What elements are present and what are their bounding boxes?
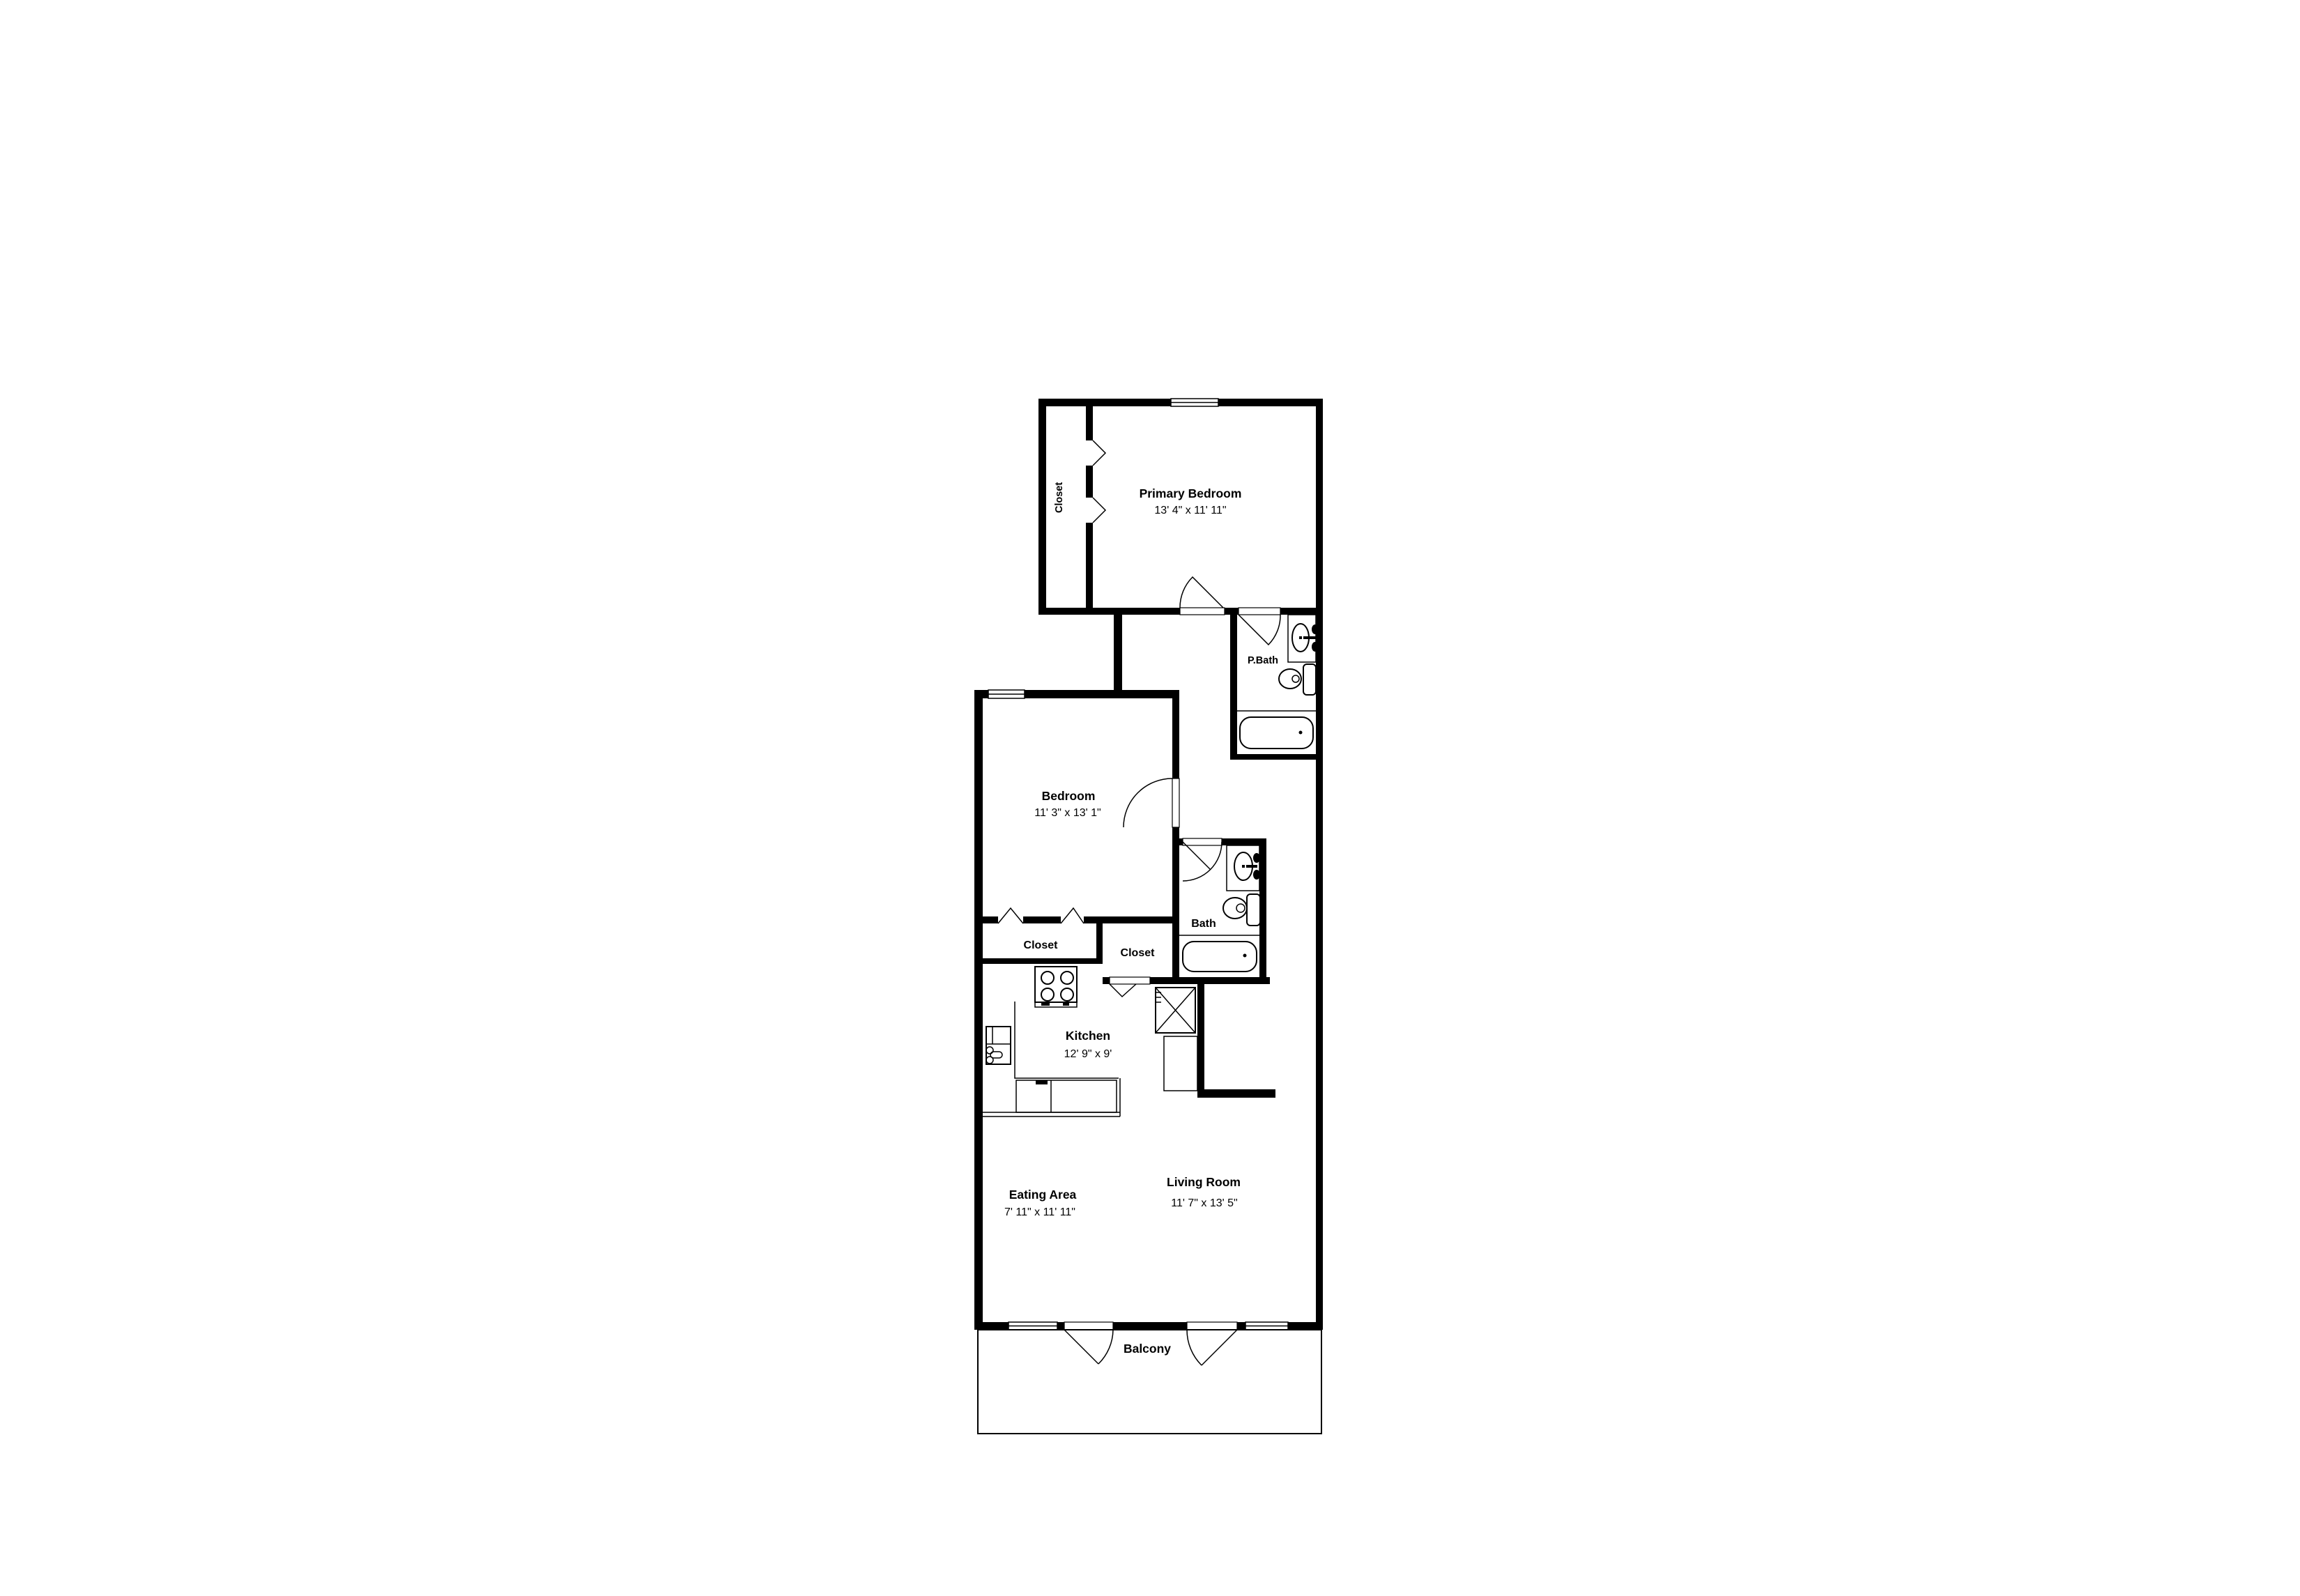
- wall-segment: [1172, 827, 1179, 984]
- wall-segment: [1023, 916, 1061, 923]
- room-label-primary-bedroom: Primary Bedroom: [1140, 486, 1242, 500]
- wall-segment: [1057, 1322, 1064, 1330]
- door-threshold: [1180, 608, 1225, 615]
- floor-plan-canvas: Primary Bedroom 13' 4" x 11' 11" Closet …: [0, 0, 2300, 1596]
- room-label-hall-closet: Closet: [1121, 947, 1156, 959]
- wall-segment: [1230, 608, 1237, 760]
- wall-segment: [1025, 690, 1178, 698]
- wall-segment: [1150, 977, 1270, 984]
- kitchen-sink-icon: [986, 1027, 1011, 1064]
- bifold-door-icon: [998, 908, 1023, 923]
- wall-segment: [1197, 1089, 1275, 1098]
- sink-icon: [1227, 845, 1260, 891]
- window-icon: [1009, 1322, 1057, 1330]
- door-swing-icon: [1124, 778, 1172, 827]
- wall-segment: [1218, 399, 1323, 406]
- toilet-icon: [1279, 664, 1316, 695]
- door-swing-icon: [1180, 577, 1223, 608]
- wall-segment: [1288, 1322, 1323, 1330]
- utility-cabinet: [1164, 1036, 1197, 1091]
- window-icon: [1245, 1322, 1288, 1330]
- bifold-door-icon: [1110, 984, 1136, 997]
- door-leaf: [1172, 778, 1179, 827]
- bathtub-icon: [1179, 935, 1259, 972]
- wall-segment: [1237, 1322, 1245, 1330]
- room-dims-eating-area: 7' 11" x 11' 11": [1004, 1206, 1075, 1218]
- window-icon: [988, 690, 1025, 698]
- door-threshold: [1239, 608, 1280, 615]
- wall-segment: [1230, 754, 1323, 760]
- door-swing-icon: [1187, 1330, 1237, 1365]
- door-swing-icon: [1064, 1330, 1113, 1364]
- toilet-icon: [1223, 894, 1260, 926]
- room-label-eating-area: Eating Area: [1009, 1188, 1077, 1202]
- door-threshold: [1110, 977, 1150, 984]
- door-swing-icon: [1239, 615, 1280, 645]
- wall-segment: [1316, 399, 1323, 1330]
- room-dims-bedroom: 11' 3" x 13' 1": [1034, 807, 1101, 819]
- wall-segment: [1086, 466, 1093, 498]
- bifold-door-icon: [1061, 908, 1084, 923]
- bifold-door-icon: [1093, 440, 1105, 466]
- wall-segment: [974, 1322, 1009, 1330]
- room-dims-kitchen: 12' 9" x 9': [1064, 1048, 1112, 1060]
- wall-segment: [1038, 608, 1180, 615]
- door-threshold: [1187, 1322, 1237, 1330]
- wall-segment: [1086, 399, 1093, 440]
- door-threshold: [1064, 1322, 1113, 1330]
- room-label-primary-closet: Closet: [1054, 482, 1065, 513]
- wall-segment: [1086, 523, 1093, 615]
- wall-segment: [1038, 399, 1046, 615]
- room-dims-living-room: 11' 7" x 13' 5": [1171, 1197, 1237, 1209]
- room-label-balcony: Balcony: [1124, 1342, 1171, 1356]
- room-label-primary-bath: P.Bath: [1248, 655, 1278, 666]
- stove-icon: [1035, 967, 1077, 1007]
- wall-segment: [1172, 690, 1179, 778]
- room-label-bath: Bath: [1191, 918, 1216, 930]
- window-icon: [1171, 399, 1218, 406]
- wall-segment: [974, 958, 1103, 964]
- wall-segment: [1113, 1322, 1187, 1330]
- room-label-bedroom: Bedroom: [1042, 789, 1096, 803]
- wall-segment: [974, 690, 983, 1330]
- door-swing-icon: [1183, 842, 1222, 881]
- wall-segment: [974, 916, 998, 923]
- room-label-living-room: Living Room: [1167, 1175, 1241, 1189]
- door-threshold: [1183, 838, 1222, 845]
- primary-bath-fixtures: [1237, 615, 1319, 749]
- washer-icon: [1156, 988, 1195, 1033]
- wall-segment: [1197, 977, 1204, 1098]
- bath-fixtures: [1179, 845, 1260, 972]
- room-dims-primary-bedroom: 13' 4" x 11' 11": [1154, 505, 1226, 516]
- wall-segment: [1103, 977, 1110, 984]
- room-label-kitchen: Kitchen: [1066, 1029, 1110, 1043]
- sink-icon: [1288, 615, 1319, 662]
- wall-segment: [1114, 608, 1122, 698]
- room-label-bedroom-closet: Closet: [1024, 939, 1059, 951]
- wall-segment: [1172, 838, 1183, 845]
- bathtub-icon: [1237, 711, 1316, 749]
- wall-segment: [1096, 916, 1103, 964]
- bifold-door-icon: [1093, 498, 1105, 523]
- wall-segment: [1038, 399, 1171, 406]
